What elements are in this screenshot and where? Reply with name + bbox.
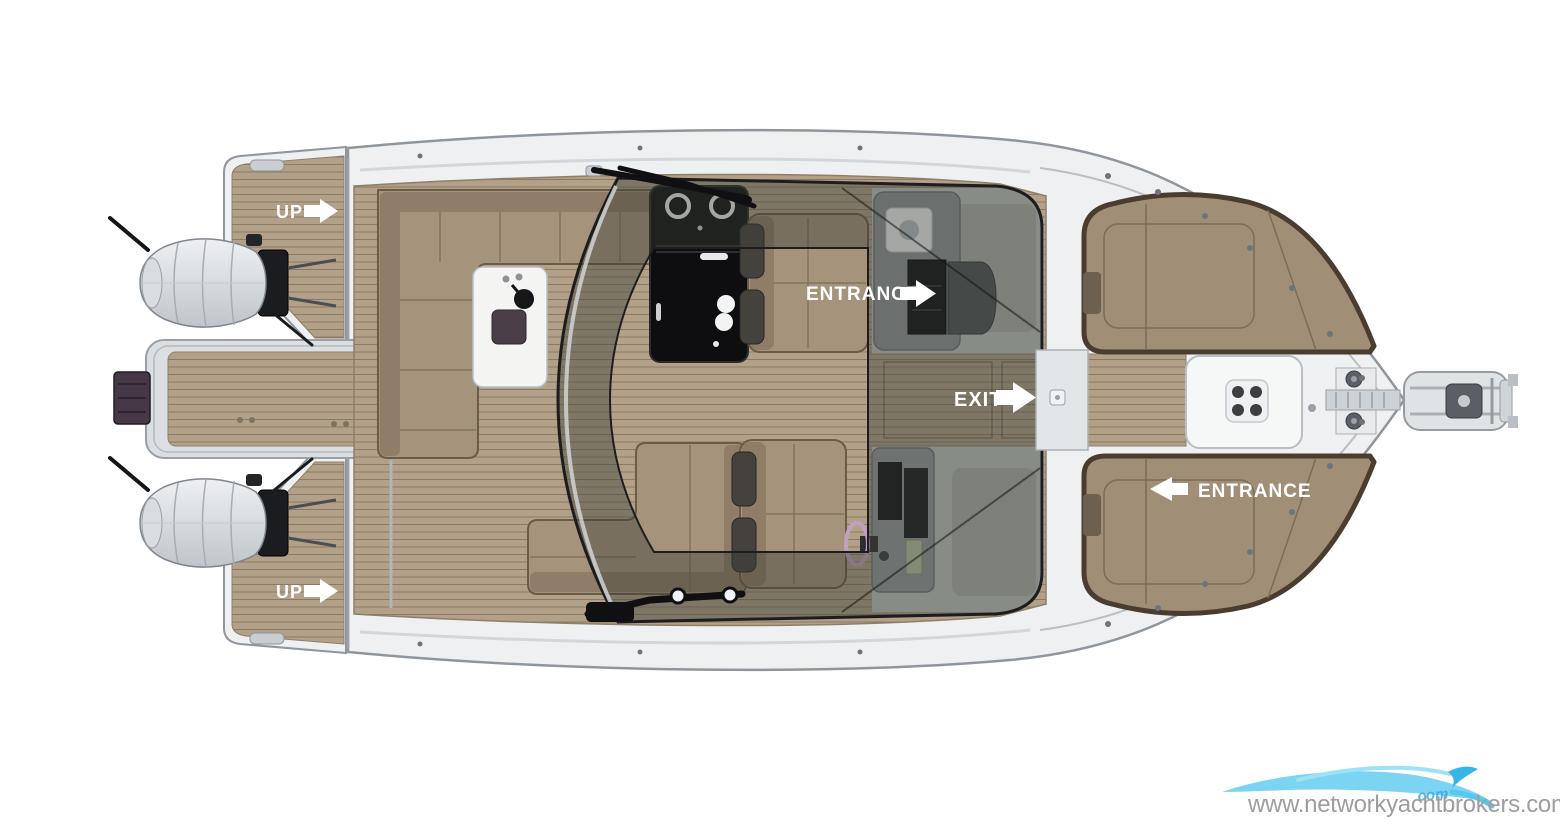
headrest [732,452,756,506]
boarding-ladder [114,372,150,424]
boat-deck-plan-canvas: UP UP ENTRANCE EXIT ENTRANCE [0,0,1560,824]
headrest [740,290,764,344]
cup-holder [1232,386,1244,398]
cup-holder [1250,404,1262,416]
bow-table [1186,356,1316,448]
cup-holder [1250,386,1262,398]
exit-text: EXIT [954,389,1002,411]
galley-sink [717,295,735,313]
cleat-port [250,160,284,171]
galley-sink [715,313,733,331]
boat-deck-plan: UP UP ENTRANCE EXIT ENTRANCE [0,0,1560,824]
up-starboard-text: UP [276,582,303,602]
up-port-text: UP [276,202,303,222]
cleat-starboard [250,633,284,644]
exit-hatch-icon [1050,390,1065,405]
watermark: com www.networkyachtbrokers.com [1222,767,1560,818]
bow-sprit-anchor-roller [1404,372,1518,430]
wet-bar-sink [492,310,526,344]
bow-lounge-starboard [1083,456,1374,614]
entrance-bow-text: ENTRANCE [1198,481,1312,502]
watermark-url: www.networkyachtbrokers.com [1247,791,1560,818]
cup-holder [1232,404,1244,416]
bow-lounge-port [1083,194,1374,352]
label-entrance-cabin: ENTRANCE [806,280,936,307]
wet-bar [473,267,547,387]
